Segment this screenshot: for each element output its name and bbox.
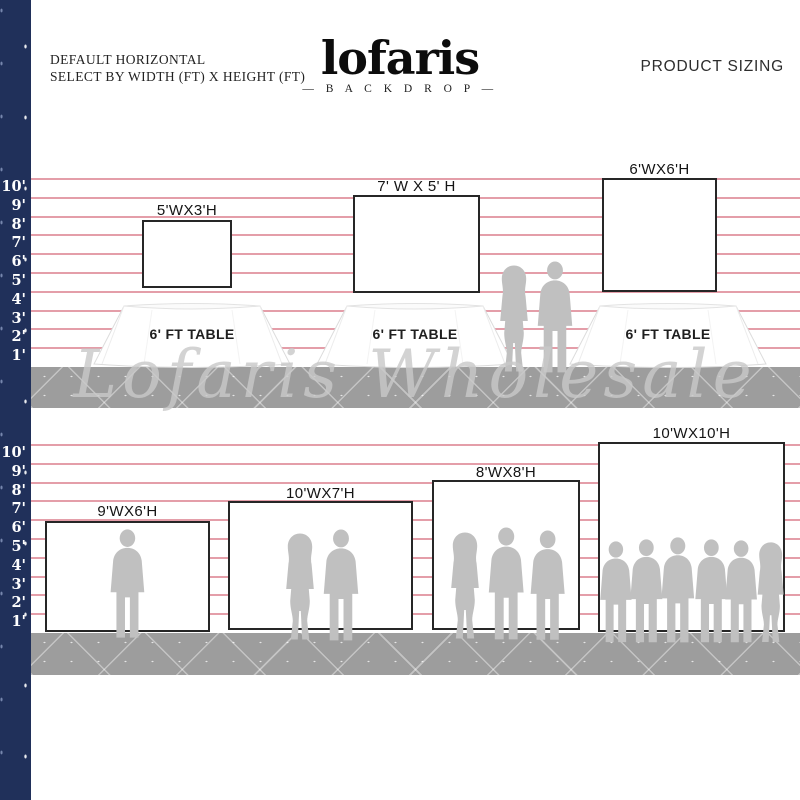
left-border-strip: [0, 0, 31, 800]
brand-logo: lofaris — B A C K D R O P —: [290, 34, 510, 95]
backdrop-box: [142, 220, 232, 288]
ruler-label: 10': [0, 179, 26, 195]
ruler-label: 5': [0, 539, 26, 555]
ruler-label: 10': [0, 445, 26, 461]
product-sizing-poster: DEFAULT HORIZONTAL SELECT BY WIDTH (FT) …: [0, 0, 800, 800]
ruler-label: 8': [0, 217, 26, 233]
ruler-label: 2': [0, 595, 26, 611]
ruler-label: 7': [0, 235, 26, 251]
ruler-label: 1': [0, 348, 26, 364]
header-subtitle-line2: SELECT BY WIDTH (FT) X HEIGHT (FT): [50, 68, 305, 85]
backdrop-size-label: 8'WX8'H: [476, 464, 536, 481]
backdrop-size-label: 7' W X 5' H: [377, 178, 455, 195]
ruler-label: 3': [0, 311, 26, 327]
people-silhouette: [443, 521, 569, 643]
header-subtitle: DEFAULT HORIZONTAL SELECT BY WIDTH (FT) …: [50, 51, 305, 85]
ruler-label: 2': [0, 329, 26, 345]
brand-logo-sub: — B A C K D R O P —: [290, 83, 510, 95]
backdrop-size-label: 6'WX6'H: [629, 161, 689, 178]
ruler-label: 8': [0, 483, 26, 499]
ruler-label: 6': [0, 520, 26, 536]
ruler-label: 9': [0, 464, 26, 480]
people-silhouette: [278, 524, 362, 644]
ruler-label: 9': [0, 198, 26, 214]
ruler-label: 1': [0, 614, 26, 630]
backdrop-size-label: 5'WX3'H: [157, 202, 217, 219]
ruler-label: 5': [0, 273, 26, 289]
people-silhouette: [595, 534, 787, 646]
backdrop-box: [602, 178, 717, 292]
ruler-label: 6': [0, 254, 26, 270]
header-subtitle-line1: DEFAULT HORIZONTAL: [50, 51, 305, 68]
brand-logo-word: lofaris: [290, 34, 510, 82]
ruler-label: 3': [0, 577, 26, 593]
product-sizing-title: PRODUCT SIZING: [640, 58, 784, 76]
backdrop-size-label: 9'WX6'H: [97, 503, 157, 520]
ruler-label: 4': [0, 292, 26, 308]
ruler-label: 4': [0, 558, 26, 574]
backdrop-box: [353, 195, 480, 293]
watermark-text: Lofaris Wholesale: [40, 336, 790, 413]
ruler-label: 7': [0, 501, 26, 517]
backdrop-size-label: 10'WX7'H: [286, 485, 355, 502]
people-silhouette: [103, 526, 153, 642]
backdrop-size-label: 10'WX10'H: [653, 425, 731, 442]
